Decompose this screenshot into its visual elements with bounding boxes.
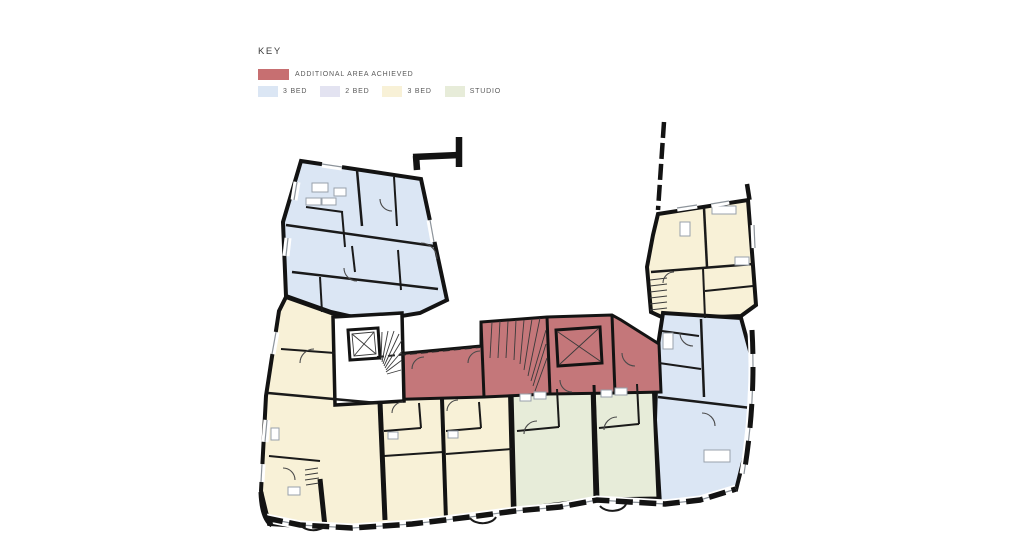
top-boundary-walls bbox=[413, 122, 750, 210]
additional-area-band bbox=[375, 315, 661, 400]
studio-1 bbox=[512, 385, 595, 509]
floor-plan bbox=[0, 0, 1024, 536]
unit-top-left-3bed bbox=[283, 161, 447, 321]
studio-2 bbox=[594, 380, 658, 499]
